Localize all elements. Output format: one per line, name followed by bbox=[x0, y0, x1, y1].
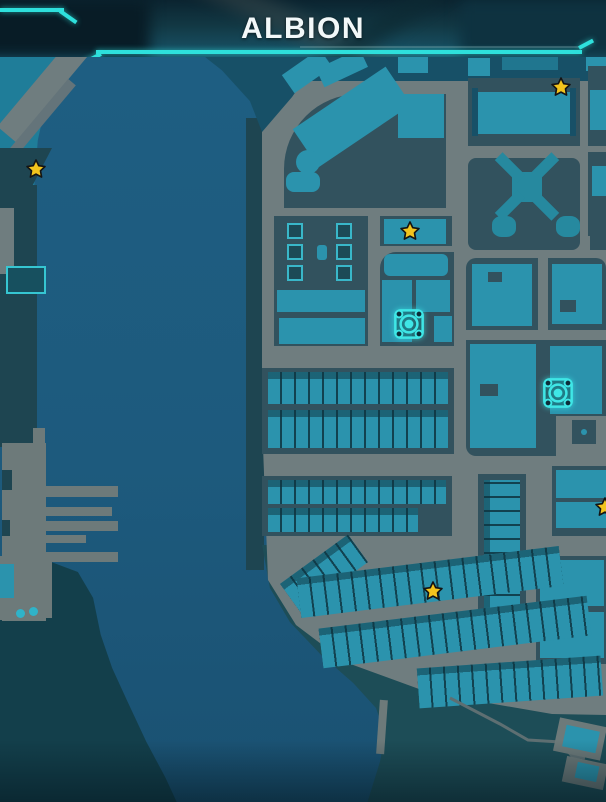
collectible-star-partial[interactable] bbox=[594, 496, 606, 518]
boat-dot bbox=[29, 607, 38, 616]
surveillance-landmark[interactable] bbox=[537, 372, 579, 414]
district-header: ALBION bbox=[0, 0, 606, 57]
map-canvas[interactable] bbox=[0, 0, 606, 802]
header-accent-bottom bbox=[96, 50, 582, 54]
collectible-star[interactable] bbox=[550, 76, 572, 98]
district-title: ALBION bbox=[0, 8, 606, 50]
boat-dot bbox=[16, 609, 25, 618]
map-screen: ALBION bbox=[0, 0, 606, 802]
marker-layer bbox=[0, 0, 606, 802]
collectible-star[interactable] bbox=[25, 158, 47, 180]
collectible-star[interactable] bbox=[399, 220, 421, 242]
collectible-star[interactable] bbox=[422, 580, 444, 602]
surveillance-landmark[interactable] bbox=[388, 303, 430, 345]
